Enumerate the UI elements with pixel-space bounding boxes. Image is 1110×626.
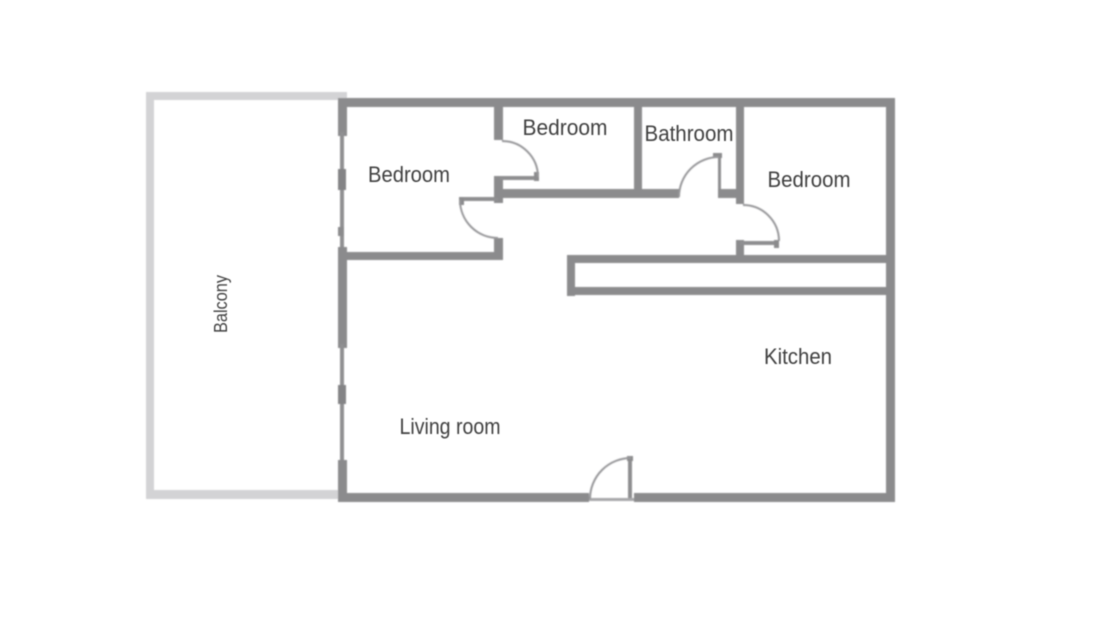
- svg-text:Balcony: Balcony: [211, 275, 231, 333]
- svg-text:Bedroom: Bedroom: [523, 115, 608, 140]
- svg-text:Bedroom: Bedroom: [368, 162, 450, 187]
- svg-text:Bathroom: Bathroom: [645, 121, 734, 146]
- svg-text:Living room: Living room: [400, 414, 501, 439]
- svg-text:Kitchen: Kitchen: [764, 344, 832, 369]
- svg-text:Bedroom: Bedroom: [768, 167, 851, 192]
